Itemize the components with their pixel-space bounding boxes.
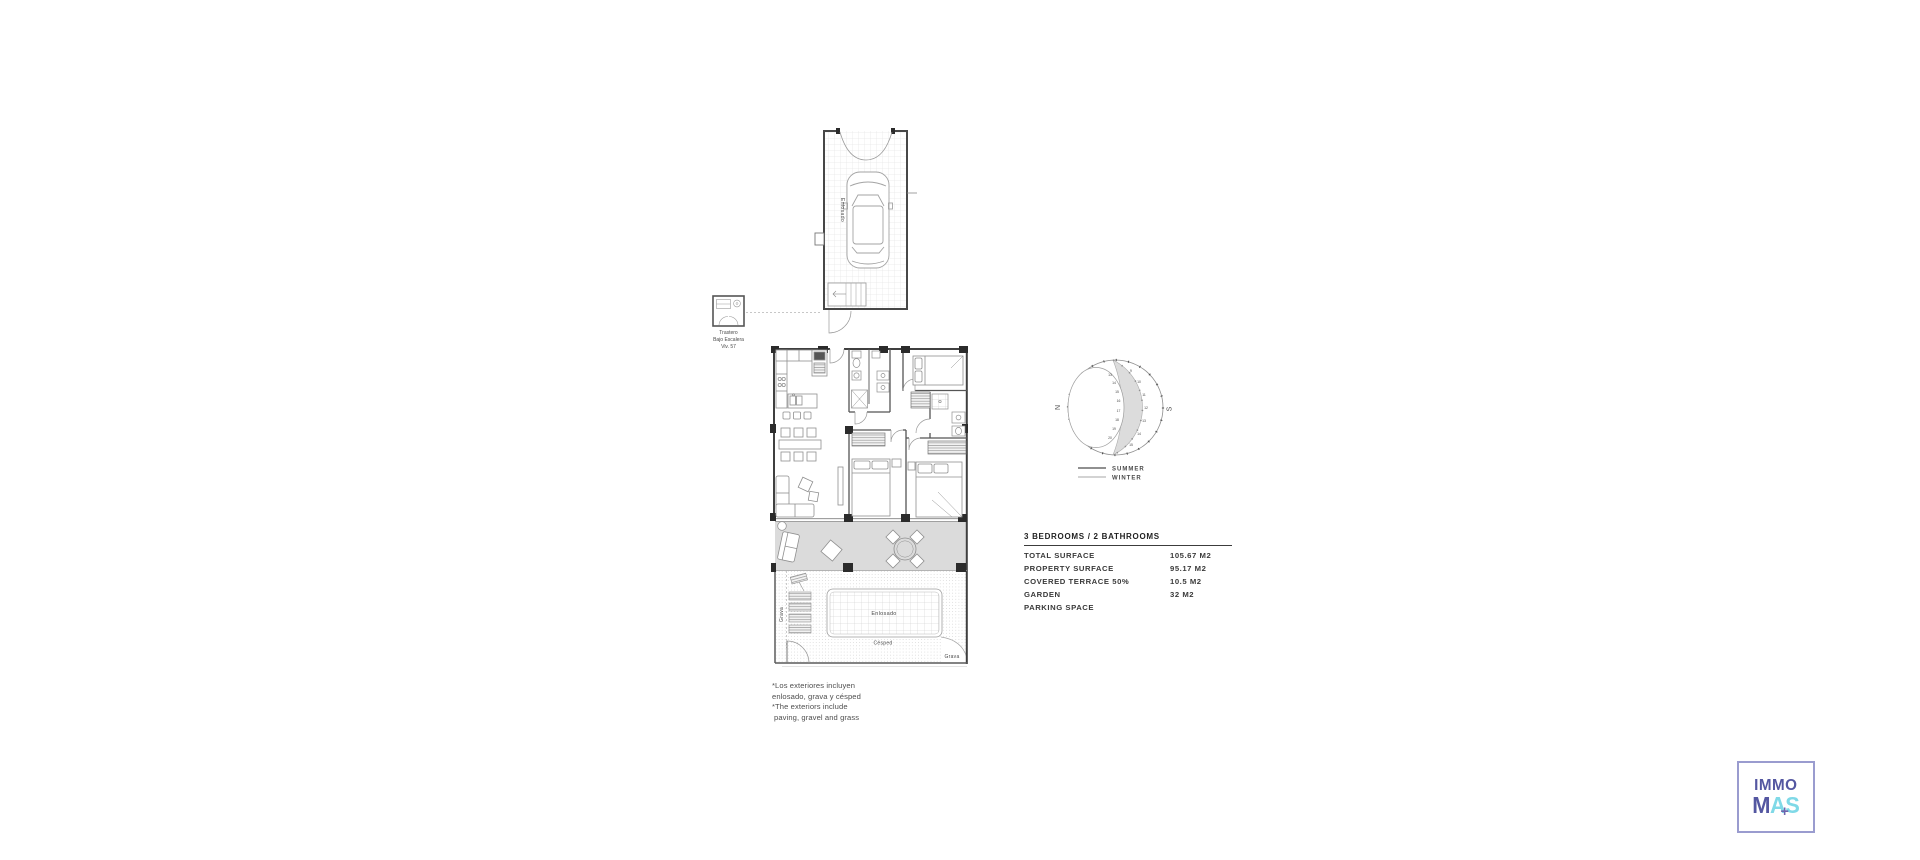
garage-stairs — [828, 283, 866, 306]
bedroom-3 — [908, 441, 966, 517]
garden-gravel-bottom-label: Grava — [944, 654, 959, 660]
note-line: *The exteriors include — [772, 702, 861, 713]
svg-text:13: 13 — [1142, 419, 1146, 423]
note-line: paving, gravel and grass — [772, 713, 861, 724]
bathroom-1 — [852, 351, 890, 408]
logo-letter-m: M — [1752, 792, 1770, 818]
dining-set — [779, 428, 821, 461]
note-line: enlosado, grava y césped — [772, 692, 861, 703]
winter-legend-label: WINTER — [1112, 476, 1142, 482]
south-label: S — [1167, 406, 1174, 411]
svg-text:10: 10 — [1137, 380, 1141, 384]
svg-text:18: 18 — [1115, 418, 1119, 422]
bathroom-2 — [932, 394, 965, 436]
svg-text:12: 12 — [1144, 406, 1148, 410]
storage-room-plan: Trastero Bajo Escalera Viv. 57 — [713, 296, 822, 350]
covered-terrace — [775, 522, 967, 570]
floor-plan-sheet: Enlosado Trastero Bajo Escalera Viv. 57 — [0, 0, 1920, 860]
svg-text:17: 17 — [1117, 409, 1121, 413]
garden-paved-label: Enlosado — [871, 611, 896, 617]
svg-text:19: 19 — [1112, 427, 1116, 431]
specs-table: 3 BEDROOMS / 2 BATHROOMS TOTAL SURFACE 1… — [1024, 532, 1232, 614]
svg-text:16: 16 — [1117, 399, 1121, 403]
garage-meter-box — [815, 233, 824, 245]
garage-side-door-arc — [829, 310, 851, 333]
summer-legend-label: SUMMER — [1112, 467, 1145, 473]
living-room — [776, 467, 843, 517]
specs-title: 3 BEDROOMS / 2 BATHROOMS — [1024, 532, 1232, 546]
summer-path-circle — [1068, 368, 1124, 448]
specs-row-total-surface: TOTAL SURFACE 105.67 M2 — [1024, 550, 1232, 563]
garage-floor-label: Enlosado — [839, 198, 845, 222]
exterior-notes: *Los exteriores incluyen enlosado, grava… — [772, 681, 861, 723]
svg-text:Bajo Escalera: Bajo Escalera — [713, 337, 744, 343]
kitchen — [776, 350, 827, 419]
svg-text:15: 15 — [1115, 390, 1119, 394]
svg-text:14: 14 — [1137, 432, 1141, 436]
north-label: N — [1055, 405, 1062, 410]
svg-text:9: 9 — [1130, 369, 1132, 373]
specs-row-parking-space: PARKING SPACE — [1024, 602, 1232, 615]
garage-plan: Enlosado — [815, 128, 917, 333]
car-icon — [844, 172, 893, 268]
svg-text:20: 20 — [1108, 436, 1112, 440]
sun-path-diagram: 13 14 15 16 17 18 19 20 9 10 11 12 13 14… — [1050, 345, 1210, 495]
specs-row-garden: GARDEN 32 M2 — [1024, 589, 1232, 602]
svg-text:15: 15 — [1129, 443, 1133, 447]
svg-text:Viv. 57: Viv. 57 — [721, 344, 736, 350]
garage-jamb-left — [836, 128, 840, 134]
specs-row-property-surface: PROPERTY SURFACE 95.17 M2 — [1024, 563, 1232, 576]
sun-legend: SUMMER WINTER — [1078, 467, 1145, 482]
apartment-floor-plan: Grava Enlosado Césped Grava — [770, 346, 968, 667]
svg-text:14: 14 — [1112, 381, 1116, 385]
logo-mas-text: MA+S — [1752, 795, 1799, 816]
immo-mas-logo: IMMO MA+S — [1737, 761, 1815, 833]
svg-text:Trastero: Trastero — [719, 330, 738, 336]
note-line: *Los exteriores incluyen — [772, 681, 861, 692]
garden-grass-label: Césped — [873, 641, 892, 647]
svg-text:13: 13 — [1108, 373, 1112, 377]
bedroom-2 — [852, 433, 901, 516]
terrace-glass-wall — [775, 519, 967, 522]
architectural-drawing: Enlosado Trastero Bajo Escalera Viv. 57 — [690, 110, 1000, 740]
svg-text:11: 11 — [1142, 393, 1146, 397]
specs-row-covered-terrace: COVERED TERRACE 50% 10.5 M2 — [1024, 576, 1232, 589]
specs-rows: TOTAL SURFACE 105.67 M2 PROPERTY SURFACE… — [1024, 546, 1232, 614]
garden-gravel-left-label: Grava — [779, 607, 785, 622]
storage-room-label: Trastero Bajo Escalera Viv. 57 — [713, 330, 744, 350]
